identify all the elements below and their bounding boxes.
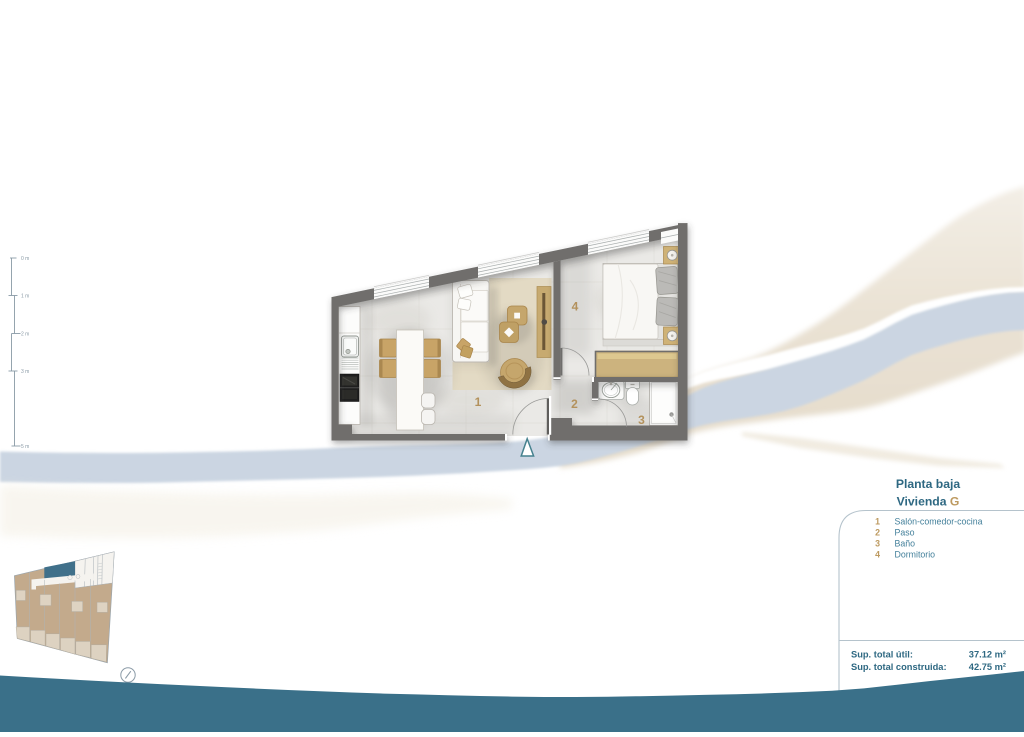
svg-text:Planta baja: Planta baja bbox=[896, 477, 961, 491]
svg-text:Salón-comedor-cocina: Salón-comedor-cocina bbox=[895, 517, 983, 527]
svg-text:Dormitorio: Dormitorio bbox=[895, 550, 936, 560]
svg-text:1 m: 1 m bbox=[21, 294, 29, 300]
svg-text:3 m: 3 m bbox=[21, 369, 29, 375]
svg-text:Baño: Baño bbox=[895, 539, 916, 549]
svg-text:1: 1 bbox=[875, 517, 880, 527]
svg-text:4: 4 bbox=[875, 550, 880, 560]
svg-text:4: 4 bbox=[572, 300, 579, 314]
svg-text:1: 1 bbox=[475, 395, 482, 409]
svg-text:Paso: Paso bbox=[895, 528, 915, 538]
svg-text:2 m: 2 m bbox=[21, 332, 29, 338]
svg-text:0 m: 0 m bbox=[21, 256, 29, 262]
svg-text:42.75 m²: 42.75 m² bbox=[969, 662, 1006, 672]
svg-text:Sup. total útil:: Sup. total útil: bbox=[851, 650, 913, 660]
svg-text:Sup. total construida:: Sup. total construida: bbox=[851, 662, 947, 672]
svg-text:2: 2 bbox=[571, 397, 578, 411]
svg-text:Vivienda G: Vivienda G bbox=[897, 495, 960, 509]
svg-text:37.12 m²: 37.12 m² bbox=[969, 650, 1006, 660]
svg-text:5 m: 5 m bbox=[21, 444, 29, 450]
svg-text:2: 2 bbox=[875, 528, 880, 538]
svg-text:3: 3 bbox=[638, 413, 645, 427]
svg-text:3: 3 bbox=[875, 539, 880, 549]
